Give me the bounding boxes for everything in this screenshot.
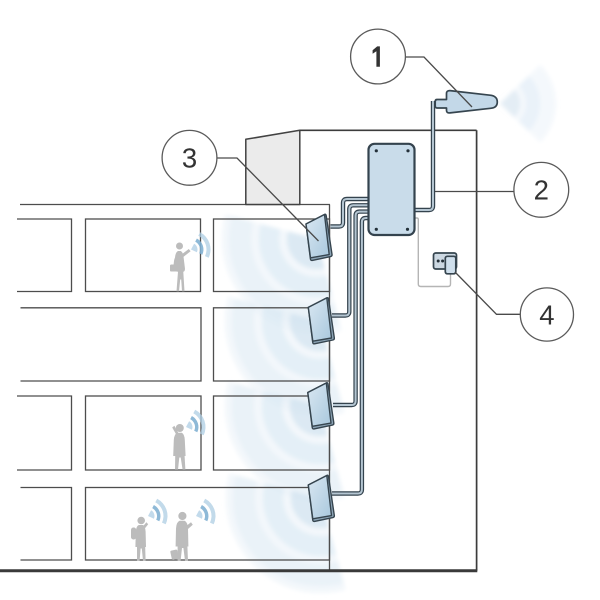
svg-text:3: 3 [182,143,197,174]
svg-text:4: 4 [539,299,554,330]
svg-text:2: 2 [534,175,549,206]
